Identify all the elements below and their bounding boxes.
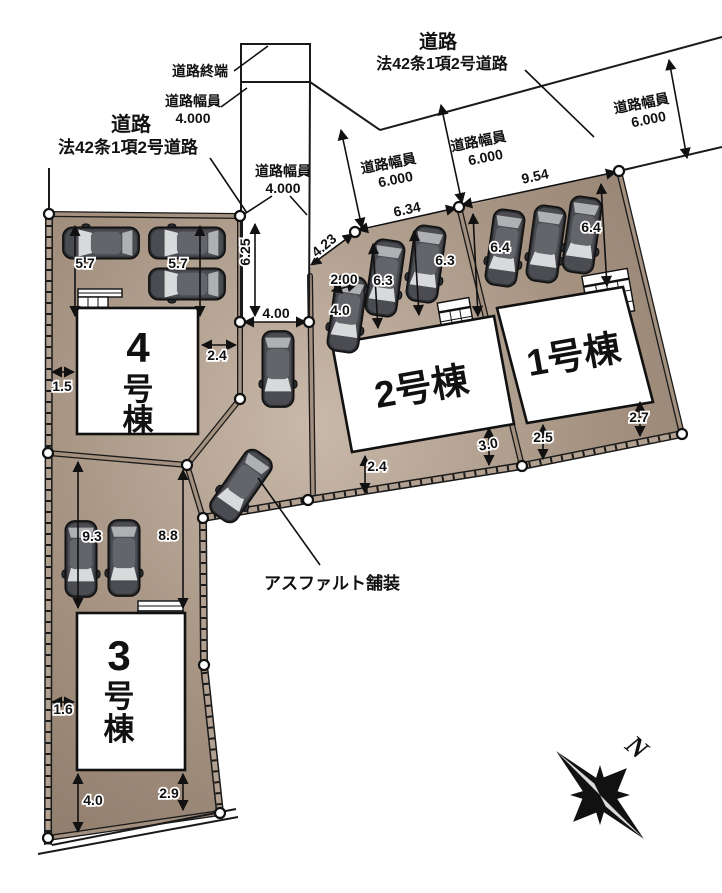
dim-lot3-s1: 4.0 xyxy=(83,792,103,808)
road-width4-mid-title: 道路幅員 xyxy=(255,163,311,179)
dim-lot4-bay1: 5.7 xyxy=(75,255,95,271)
road-end-label: 道路終端 xyxy=(172,63,228,79)
dim-lot2-d2: 4.0 xyxy=(330,302,350,318)
asphalt-label: アスファルト舗装 xyxy=(264,573,400,593)
dim-lot1-d1: 6.4 xyxy=(490,239,510,255)
site-plan-page: 4 号 棟 3 号 棟 2号棟 1号棟 xyxy=(0,0,722,893)
dim-lot2-d1: 2.00 xyxy=(330,271,357,287)
road-label-left-line1: 道路 xyxy=(111,112,152,136)
dim-lot2-s1: 2.4 xyxy=(367,458,387,474)
road-width4-top-value: 4.000 xyxy=(175,110,210,126)
road-width4-top-title: 道路幅員 xyxy=(165,93,221,109)
site-plan-drawing: 4 号 棟 3 号 棟 2号棟 1号棟 xyxy=(0,0,722,893)
car xyxy=(259,331,297,407)
dim-lot3-s2: 2.9 xyxy=(159,785,179,801)
dim-lot2-d4: 6.3 xyxy=(435,252,455,268)
dim-lot1-s1: 2.5 xyxy=(533,429,553,445)
building-4-label-tou: 棟 xyxy=(123,403,155,438)
dim-lot4-west: 1.5 xyxy=(52,378,72,394)
building-4-label-number: 4 xyxy=(126,324,150,371)
dim-lot3-west: 1.6 xyxy=(53,701,73,717)
dim-lot3-d2: 8.8 xyxy=(158,527,178,543)
dim-lot3-d1: 9.3 xyxy=(82,528,102,544)
road-label-left-line2: 法42条1項2号道路 xyxy=(58,137,199,157)
dim-road-width: 4.00 xyxy=(262,305,289,321)
dim-lot1-s2: 2.7 xyxy=(629,409,649,425)
road-width4-mid-value: 4.000 xyxy=(265,180,300,196)
road-label-top-line2: 法42条1項2号道路 xyxy=(376,54,509,73)
building-3-label-number: 3 xyxy=(107,632,130,679)
building-3-label-tou: 棟 xyxy=(104,712,136,747)
dim-road-length: 6.25 xyxy=(237,238,253,265)
dim-lot1-d2: 6.4 xyxy=(581,219,601,235)
dim-lot2-s2: 3.0 xyxy=(477,434,499,453)
dim-lot4-east: 2.4 xyxy=(207,347,227,363)
dim-lot4-bay2: 5.7 xyxy=(168,255,188,271)
car xyxy=(105,520,143,596)
building-4-label-go: 号 xyxy=(123,372,154,407)
dim-lot2-d3: 6.3 xyxy=(373,272,393,288)
road-label-top-line1: 道路 xyxy=(419,30,458,53)
road-end-box xyxy=(241,44,310,82)
building-3-label-go: 号 xyxy=(104,679,135,714)
